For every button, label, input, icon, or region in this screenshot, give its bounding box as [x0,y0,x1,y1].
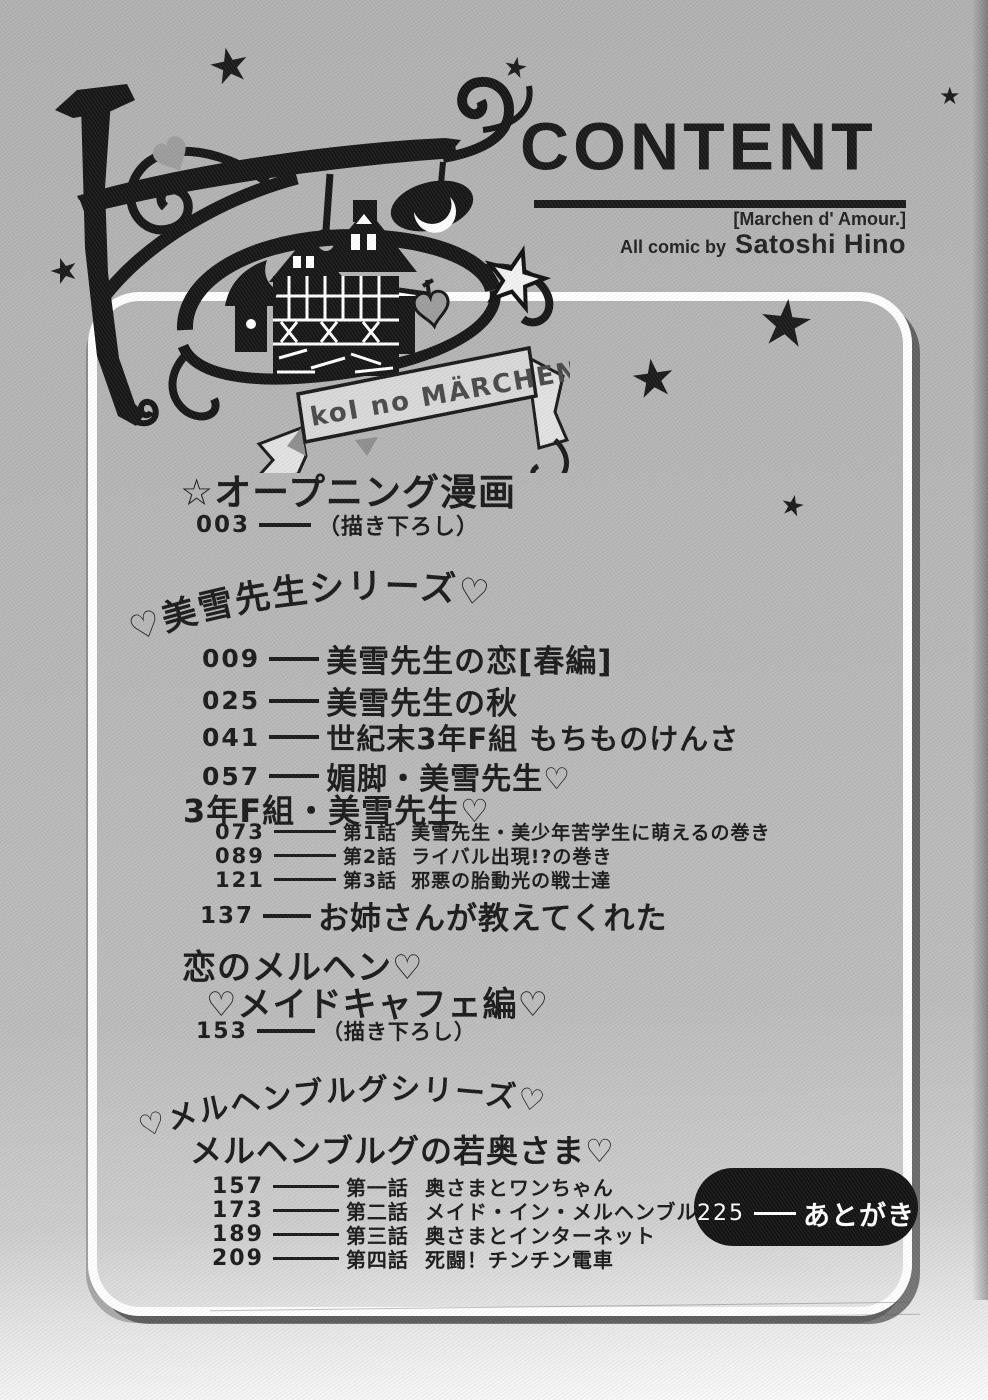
toc-entry-003: 003 （描き下ろし） [196,509,479,541]
leader-dash [274,830,336,834]
entry-note: （描き下ろし） [322,1016,476,1046]
author-name: Satoshi Hino [735,229,906,260]
hanging-sign-illustration: koI no MÄRCHEN [15,28,570,473]
leader-dash [754,1212,796,1215]
page-number: 153 [196,1019,248,1044]
contents-page: CONTENT [Marchen d' Amour.] All comic by… [0,0,988,1400]
page-number: 089 [215,844,265,868]
moon-icon [385,173,478,240]
toc-episode-121: 121 第3話 邪悪の胎動光の戦士達 [215,866,611,893]
episode-label: 第2話 [343,842,397,869]
leader-dash [257,1029,315,1033]
opening-title: ☆オープニング漫画 [180,462,516,516]
toc-episode-209: 209 第四話 死闘！チンチン電車 [212,1244,614,1273]
toc-entry-137: 137 お姉さんが教えてくれた [200,893,668,938]
toc-entry-009: 009 美雪先生の恋[春編] [202,636,613,681]
page-number: 121 [215,868,265,892]
leader-dash [269,774,319,778]
episode-title: ライバル出現!?の巻き [411,842,612,869]
star-icon: ★ [754,289,818,359]
leader-dash [274,878,336,882]
leader-dash [269,699,319,703]
leader-dash [263,914,311,918]
episode-label: 第四話 [346,1244,409,1273]
page-number: 025 [202,686,260,715]
page-number: 009 [202,644,260,673]
afterword-title: あとがき [803,1194,915,1233]
tower-icon [225,260,278,352]
marchenburg-title: メルヘンブルグの若奥さま♡ [190,1126,615,1172]
leader-dash [273,1185,339,1189]
star-icon: ★ [627,350,680,408]
afterword-pill: 225 あとがき [694,1168,918,1246]
toc-episode-089: 089 第2話 ライバル出現!?の巻き [215,842,612,869]
episode-title: 邪悪の胎動光の戦士達 [411,866,611,893]
heart-icon [413,290,451,329]
page-number: 137 [200,903,254,929]
entry-title: 世紀末3年F組 もちものけんさ [326,716,739,758]
toc-entry-041: 041 世紀末3年F組 もちものけんさ [202,716,739,758]
leader-dash [274,854,336,858]
page-number: 209 [212,1246,264,1271]
leader-dash [273,1257,339,1261]
page-edge-shadow [972,0,988,1300]
page-number: 041 [202,723,260,752]
page-number: 003 [196,512,250,538]
episode-label: 第1話 [343,818,397,845]
page-number: 225 [697,1201,745,1226]
episode-label: 第3話 [343,866,397,893]
page-title: CONTENT [520,109,877,185]
episode-title: 美雪先生・美少年苦学生に萌えるの巻き [411,818,770,845]
leader-dash [273,1233,339,1237]
leader-dash [259,523,311,527]
star-icon: ★ [939,84,961,108]
toc-entry-153: 153 （描き下ろし） [196,1016,476,1046]
page-number: 073 [215,820,265,844]
entry-title: お姉さんが教えてくれた [318,893,668,938]
leader-dash [269,735,319,739]
episode-title: 死闘！チンチン電車 [425,1244,614,1273]
entry-note: （描き下ろし） [318,509,479,541]
entry-title: 美雪先生の恋[春編] [326,636,612,681]
byline-prefix: All comic by [620,237,726,258]
leader-dash [273,1209,339,1213]
leader-dash [269,657,319,661]
toc-episode-073: 073 第1話 美雪先生・美少年苦学生に萌えるの巻き [215,818,771,845]
house-icon [269,200,417,376]
title-underline [534,200,906,208]
